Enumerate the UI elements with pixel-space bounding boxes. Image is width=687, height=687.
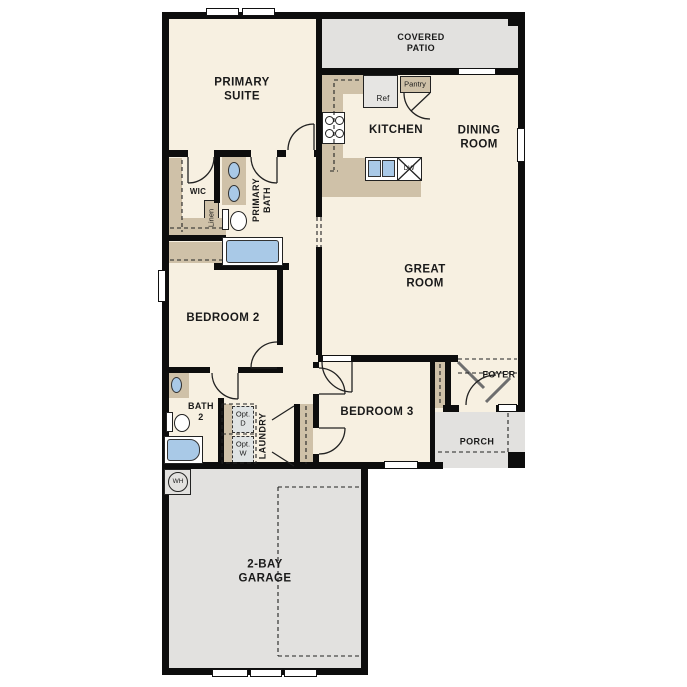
laundry-door: [272, 406, 294, 466]
label-bedroom3: BEDROOM 3: [340, 405, 413, 419]
floor-plan: COVERED PATIO PRIMARY SUITE KITCHEN DINI…: [0, 0, 687, 687]
door-arc: [319, 428, 345, 454]
door-arc: [322, 362, 352, 392]
label-bath2: BATH 2: [188, 401, 214, 424]
label-kitchen: KITCHEN: [369, 123, 423, 137]
label-opt-dryer: Opt. D: [236, 410, 250, 429]
label-great-room: GREAT ROOM: [404, 263, 445, 292]
label-opt-washer: Opt. W: [236, 440, 250, 459]
label-laundry: LAUNDRY: [257, 413, 268, 459]
label-wic: WIC: [190, 187, 206, 197]
label-covered-patio: COVERED PATIO: [397, 32, 444, 55]
label-primary-suite: PRIMARY SUITE: [214, 76, 269, 105]
door-arc: [188, 157, 214, 183]
door-arc: [212, 373, 238, 399]
label-water-heater: WH: [173, 478, 184, 486]
label-garage: 2-BAY GARAGE: [239, 558, 292, 587]
label-foyer: FOYER: [482, 369, 515, 380]
hall-opening-dash: [317, 217, 321, 247]
label-dishwasher: DW: [404, 165, 415, 173]
label-linen: Linen: [206, 209, 215, 227]
door-swings-and-dashed-lines: [0, 0, 687, 687]
label-pantry: Pantry: [404, 79, 426, 88]
label-dining-room: DINING ROOM: [458, 124, 501, 153]
label-porch: PORCH: [460, 436, 495, 447]
door-arc: [251, 342, 277, 368]
foyer-closet-door: [458, 362, 484, 388]
label-primary-bath: PRIMARY BATH: [251, 178, 274, 222]
front-door: [486, 378, 510, 402]
pantry-door: [404, 93, 430, 119]
label-bedroom2: BEDROOM 2: [186, 311, 259, 325]
label-refrigerator: Ref: [376, 94, 389, 104]
door-arc: [288, 124, 314, 150]
kitchen-counter-dash: [330, 80, 359, 171]
